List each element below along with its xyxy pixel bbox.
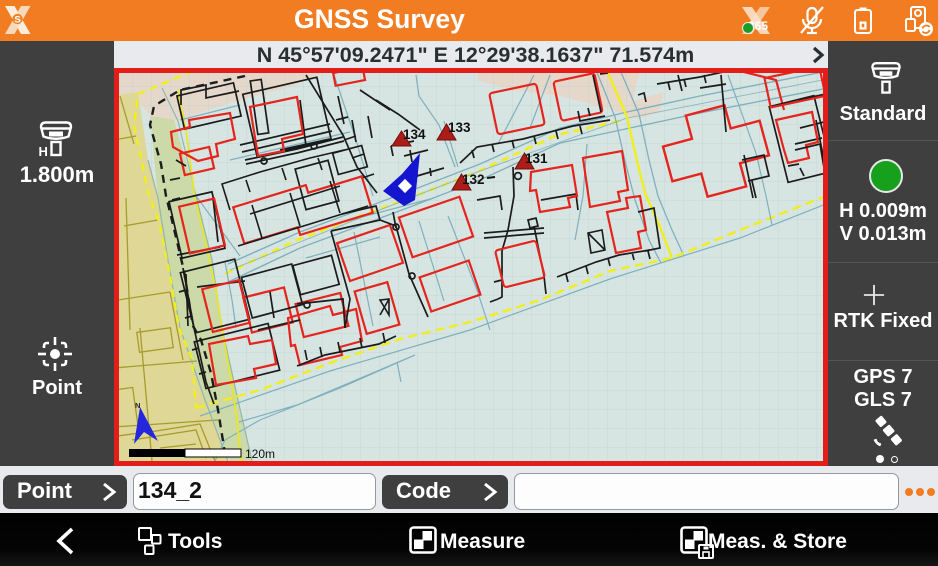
- svg-text:120m: 120m: [245, 447, 275, 461]
- svg-text:134: 134: [403, 127, 426, 142]
- svg-text:N: N: [135, 401, 140, 410]
- svg-text:H: H: [39, 144, 48, 159]
- svg-text:132: 132: [462, 172, 485, 187]
- svg-text:133: 133: [448, 120, 471, 135]
- svg-text:131: 131: [525, 151, 548, 166]
- svg-text:S: S: [14, 15, 20, 26]
